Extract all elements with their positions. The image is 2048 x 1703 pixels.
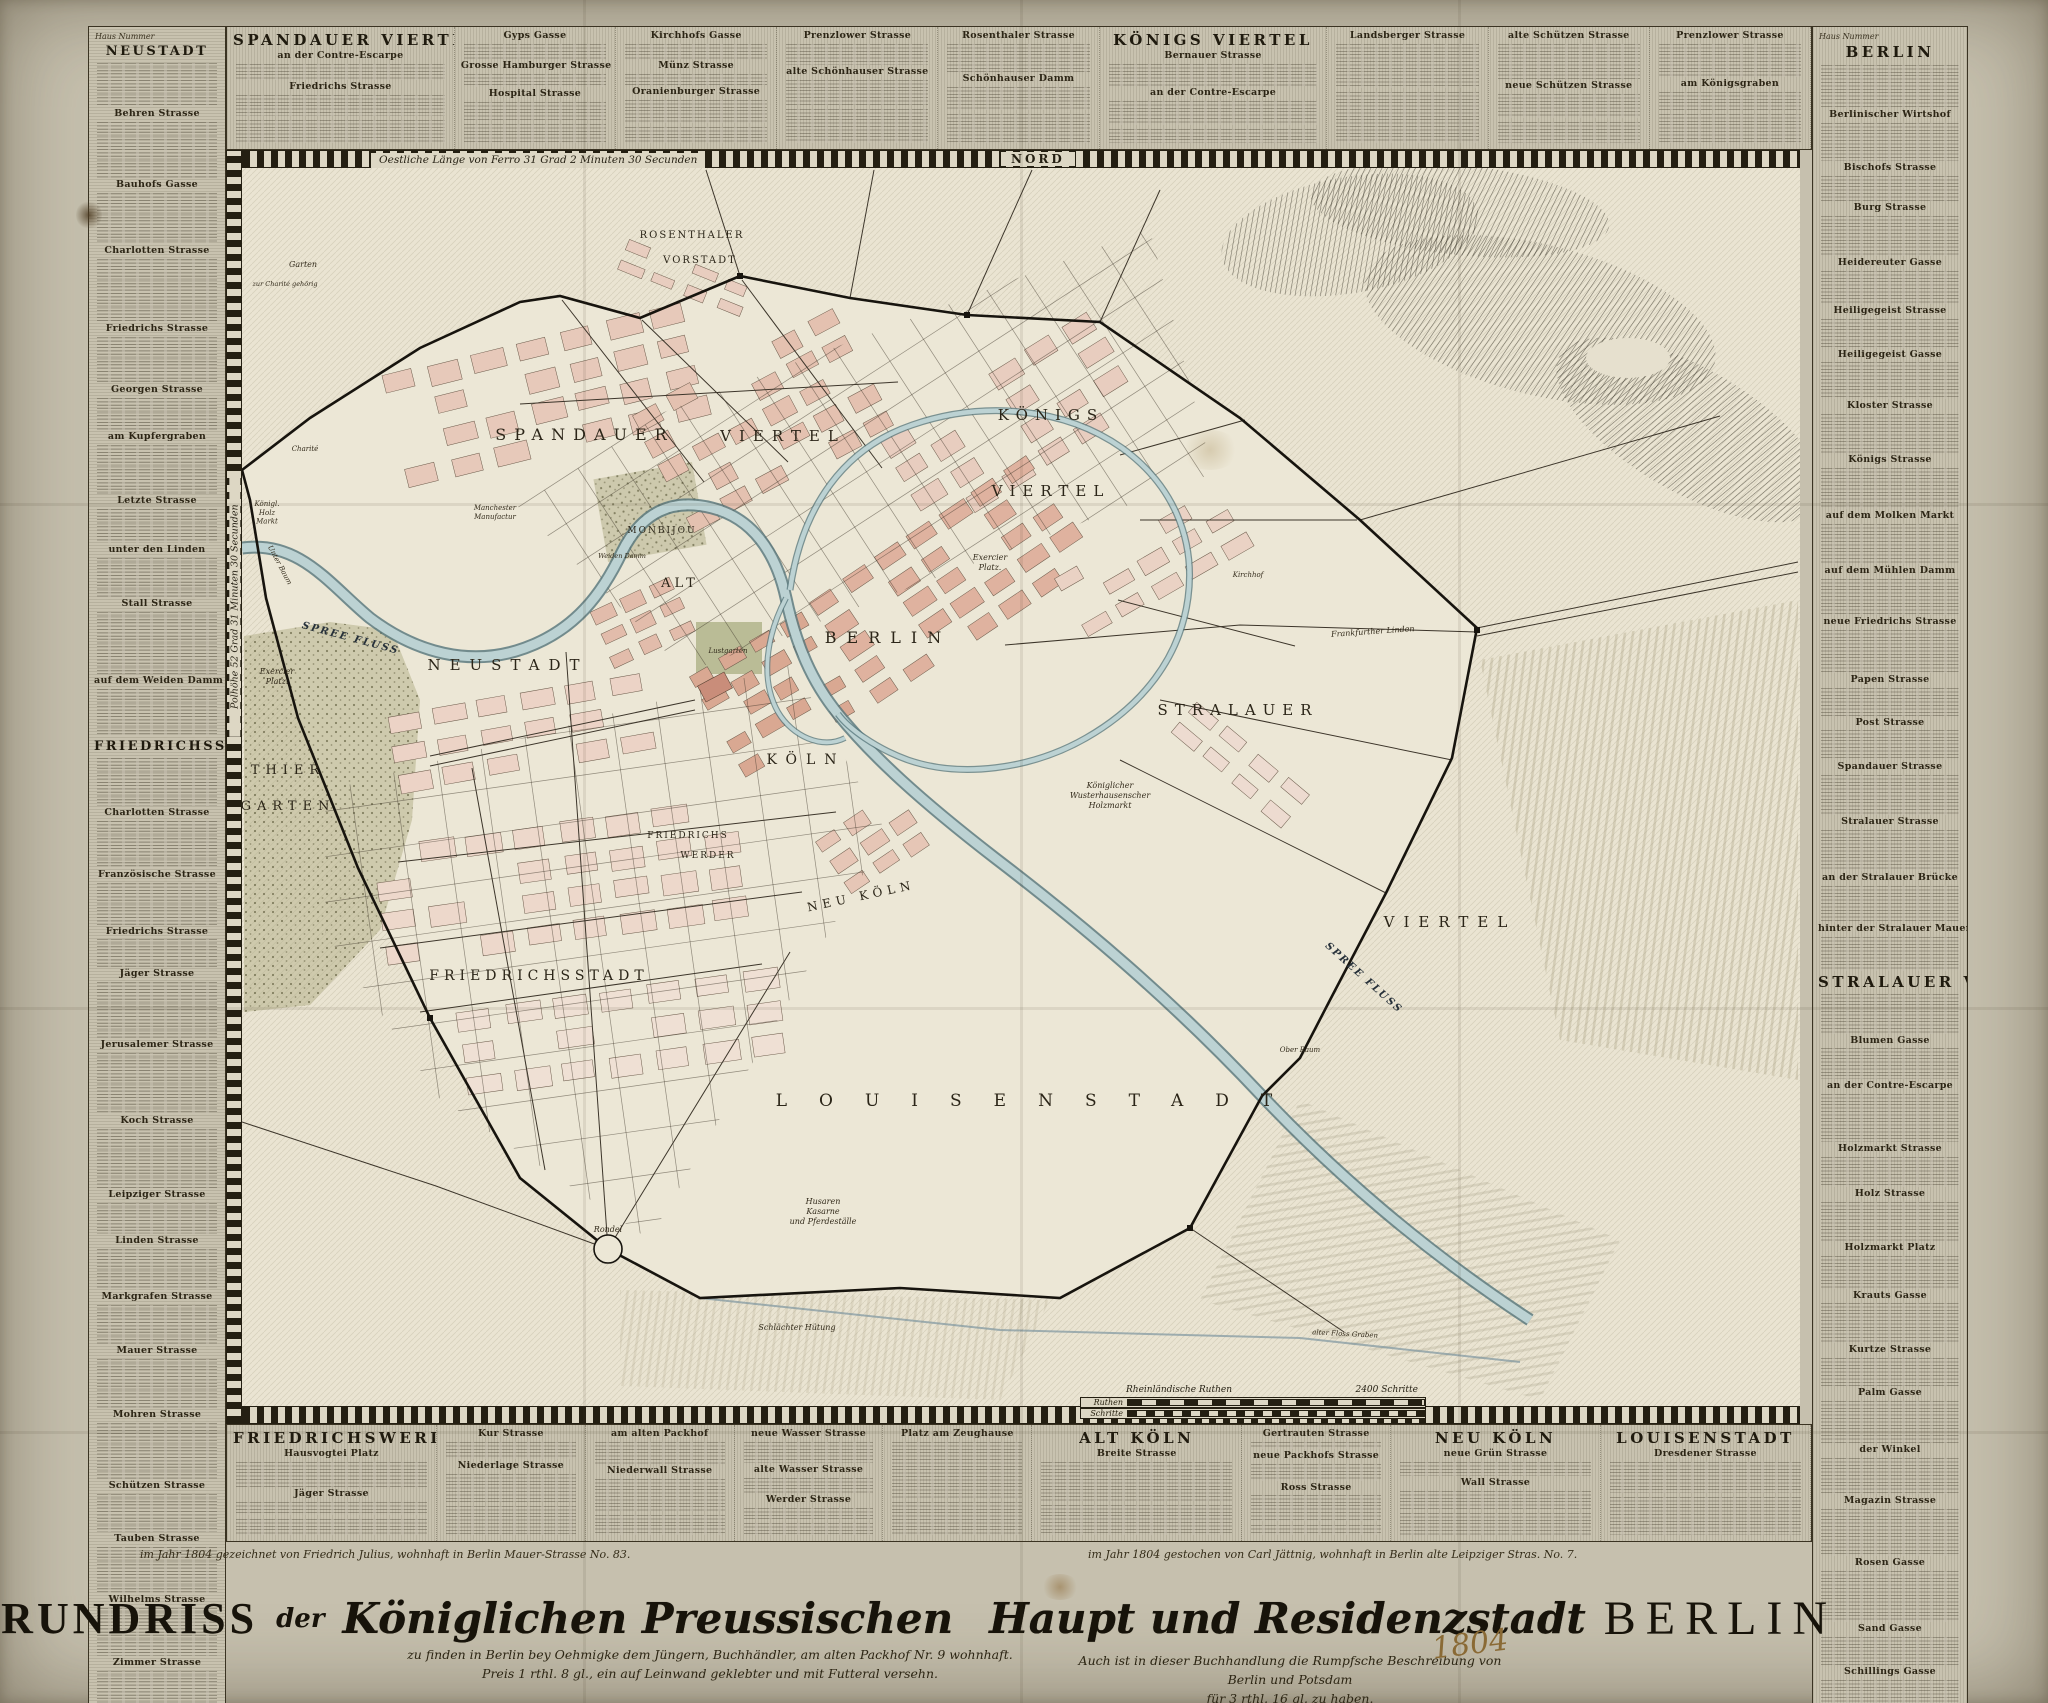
fields-south (620, 1290, 1050, 1400)
register-fineprint-filler (97, 1203, 217, 1235)
map-label: STRALAUER (1157, 701, 1318, 719)
register-street-name: Magazin Strasse (1818, 1496, 1962, 1507)
register-street-name: Markgrafen Strasse (94, 1292, 220, 1303)
map-label: Schlächter Hütung (758, 1323, 835, 1332)
latitude-note: Polhöhe 52 Grad 31 Minuten 30 Secunden (229, 477, 240, 737)
register-street-name: Heidereuter Gasse (1818, 258, 1962, 269)
map-label: VIERTEL (719, 427, 846, 445)
register-street-name: Ross Strasse (1248, 1483, 1384, 1494)
register-column: SPANDAUER VIERTELan der Contre-EscarpeFr… (227, 27, 455, 149)
scale-row-label: Schritte (1081, 1410, 1127, 1418)
register-column: Landsberger Strasse (1327, 27, 1488, 149)
rondel-plaza (594, 1235, 622, 1263)
register-note: Haus Nummer (1819, 33, 1962, 41)
register-fineprint-filler (595, 1442, 725, 1464)
register-street-name: Königs Strasse (1818, 455, 1962, 466)
register-street-name: Kurtze Strasse (1818, 1345, 1962, 1356)
register-street-name: an der Contre-Escarpe (1818, 1081, 1962, 1092)
register-street-name: Jerusalemer Strasse (94, 1040, 220, 1051)
register-fineprint-filler (446, 1506, 576, 1535)
register-street-name: Heiligegeist Gasse (1818, 350, 1962, 361)
map-label: THIER (251, 763, 325, 778)
register-street-name: Oranienburger Strasse (622, 87, 770, 98)
register-fineprint-filler (1821, 830, 1959, 871)
map-label: Lustgarten (707, 647, 748, 655)
register-street-name: Charlotten Strasse (94, 808, 220, 819)
register-fineprint-filler (892, 1502, 1022, 1535)
register-fineprint-filler (1821, 1048, 1959, 1079)
map-label: GARTEN (242, 799, 335, 814)
register-fineprint-filler (97, 509, 217, 543)
register-fineprint-filler (1109, 129, 1318, 143)
register-fineprint-filler (1821, 123, 1959, 161)
register-fineprint-filler (236, 1502, 427, 1515)
register-street-name: Hospital Strasse (461, 89, 609, 100)
register-fineprint-filler (947, 114, 1089, 143)
register-column: Prenzlower Strasseam Königsgraben (1650, 27, 1811, 149)
register-fineprint-filler (625, 44, 767, 59)
map-label: KÖLN (766, 750, 845, 768)
register-street-name: Dresdener Strasse (1607, 1449, 1804, 1460)
register-district-header: STRALAUER VIERTEL (1818, 975, 1962, 991)
register-district-header: NEUSTADT (94, 45, 220, 59)
register-fineprint-filler (97, 982, 217, 1038)
publisher-imprint: zu finden in Berlin bey Oehmigke dem Jün… (310, 1646, 1110, 1684)
register-fineprint-filler (1109, 64, 1318, 86)
register-street-name: Niederwall Strasse (592, 1466, 728, 1477)
map-label: BERLIN (825, 628, 951, 647)
register-fineprint-filler (97, 122, 217, 179)
register-fineprint-filler (1821, 1303, 1959, 1343)
register-street-name: Jäger Strasse (233, 1489, 430, 1500)
register-fineprint-filler (446, 1474, 576, 1502)
register-fineprint-filler (1821, 1401, 1959, 1443)
register-fineprint-filler (744, 1523, 874, 1535)
fold-crease (583, 0, 586, 1703)
map-label: Kirchhof (1232, 571, 1265, 579)
register-fineprint-filler (1821, 176, 1959, 201)
register-street-name: Berlinischer Wirtshof (1818, 110, 1962, 121)
register-street-name: Papen Strasse (1818, 675, 1962, 686)
register-fineprint-filler (97, 612, 217, 674)
register-fineprint-filler (236, 1462, 427, 1488)
title-grundriss: GRUNDRISS (0, 1597, 258, 1641)
register-district-header: BERLIN (1818, 45, 1962, 61)
map-label: Garten (289, 260, 317, 269)
register-fineprint-filler (1251, 1495, 1381, 1520)
register-column: Gertrauten Strasseneue Packhofs StrasseR… (1242, 1425, 1391, 1541)
register-street-name: Jäger Strasse (94, 969, 220, 980)
register-street-name: alte Wasser Strasse (741, 1465, 877, 1476)
register-fineprint-filler (1821, 1202, 1959, 1241)
register-street-name: Charlotten Strasse (94, 246, 220, 257)
register-fineprint-filler (1821, 1094, 1959, 1142)
register-street-name: Grosse Hamburger Strasse (461, 61, 609, 72)
register-fineprint-filler (1821, 216, 1959, 256)
register-fineprint-filler (97, 558, 217, 597)
register-fineprint-filler (97, 758, 217, 807)
register-street-name: Prenzlower Strasse (783, 31, 931, 42)
register-fineprint-filler (446, 1442, 576, 1459)
map-label: Charité (292, 445, 319, 453)
register-fineprint-filler (1109, 101, 1318, 126)
map-label: NEUSTADT (427, 656, 588, 674)
register-fineprint-filler (1821, 937, 1959, 971)
register-street-name: Rosenthaler Strasse (944, 31, 1092, 42)
register-fineprint-filler (97, 821, 217, 868)
register-fineprint-filler (97, 883, 217, 925)
register-street-name: auf dem Mühlen Damm (1818, 566, 1962, 577)
register-district-header: SPANDAUER VIERTEL (233, 33, 448, 49)
register-street-name: an der Stralauer Brücke (1818, 873, 1962, 884)
register-fineprint-filler (1821, 775, 1959, 815)
register-street-name: Georgen Strasse (94, 385, 220, 396)
register-column: NEU KÖLNneue Grün StrasseWall Strasse (1391, 1425, 1601, 1541)
register-street-name: Friedrichs Strasse (233, 82, 448, 93)
register-street-name: Werder Strasse (741, 1495, 877, 1506)
register-column: Gyps GasseGrosse Hamburger StrasseHospit… (455, 27, 616, 149)
register-fineprint-filler (1821, 994, 1959, 1033)
register-column: am alten PackhofNiederwall Strasse (586, 1425, 735, 1541)
register-street-name: alte Schönhauser Strasse (783, 67, 931, 78)
register-fineprint-filler (97, 398, 217, 431)
register-street-name: Gyps Gasse (461, 31, 609, 42)
map-label: Rondel (593, 1225, 623, 1234)
handwritten-year: 1804 (1430, 1625, 1509, 1664)
register-fineprint-filler (892, 1442, 1022, 1498)
map-label: VIERTEL (991, 482, 1111, 500)
register-fineprint-filler (947, 87, 1089, 110)
fold-crease (1020, 0, 1023, 1703)
register-street-name: am Kupfergraben (94, 432, 220, 443)
register-fineprint-filler (1821, 65, 1959, 108)
register-fineprint-filler (625, 100, 767, 123)
register-fineprint-filler (1821, 1256, 1959, 1289)
register-street-name: Niederlage Strasse (443, 1461, 579, 1472)
register-bottom-friedrichswerder-koeln-louisenstadt: FRIEDRICHSWERDERHausvogtei PlatzJäger St… (226, 1424, 1812, 1542)
register-column: FRIEDRICHSWERDERHausvogtei PlatzJäger St… (227, 1425, 437, 1541)
register-fineprint-filler (786, 44, 928, 65)
register-street-name: Prenzlower Strasse (1656, 31, 1804, 42)
register-fineprint-filler (97, 939, 217, 967)
register-street-name: Behren Strasse (94, 109, 220, 120)
register-street-name: Linden Strasse (94, 1236, 220, 1247)
scale-bar: Rheinländische Ruthen 2400 Schritte Ruth… (1080, 1386, 1426, 1419)
register-fineprint-filler (1821, 579, 1959, 614)
register-street-name: Krauts Gasse (1818, 1291, 1962, 1302)
register-street-name: der Winkel (1818, 1445, 1962, 1456)
register-fineprint-filler (1821, 414, 1959, 453)
register-fineprint-filler (744, 1442, 874, 1463)
map-sheet: Haus NummerNEUSTADTBehren StrasseBauhofs… (0, 0, 2048, 1703)
register-fineprint-filler (236, 64, 445, 80)
register-column: Prenzlower Strassealte Schönhauser Stras… (777, 27, 938, 149)
register-column: ALT KÖLNBreite Strasse (1032, 1425, 1242, 1541)
register-fineprint-filler (947, 44, 1089, 72)
register-fineprint-filler (97, 1053, 217, 1114)
title-connector: der (276, 1606, 324, 1632)
register-fineprint-filler (1400, 1513, 1591, 1535)
register-fineprint-filler (97, 689, 217, 736)
register-street-name: Mohren Strasse (94, 1410, 220, 1421)
register-street-name: Friedrichs Strasse (94, 324, 220, 335)
fold-crease (1458, 0, 1461, 1703)
register-fineprint-filler (97, 1129, 217, 1188)
register-fineprint-filler (1821, 630, 1959, 674)
register-column: neue Wasser Strassealte Wasser StrasseWe… (735, 1425, 884, 1541)
register-street-name: Bernauer Strasse (1106, 51, 1321, 62)
register-street-name: Stall Strasse (94, 599, 220, 610)
register-column: Platz am Zeughause (883, 1425, 1032, 1541)
register-note: Haus Nummer (95, 33, 220, 41)
map-label: ALT (660, 576, 699, 591)
register-fineprint-filler (1041, 1505, 1232, 1536)
register-fineprint-filler (1821, 271, 1959, 304)
register-fineprint-filler (97, 445, 217, 494)
register-fineprint-filler (97, 63, 217, 107)
register-fineprint-filler (1821, 1358, 1959, 1386)
register-street-name: Leipziger Strasse (94, 1190, 220, 1201)
register-fineprint-filler (1659, 44, 1801, 77)
register-fineprint-filler (1821, 730, 1959, 760)
register-fineprint-filler (625, 74, 767, 85)
register-fineprint-filler (1251, 1442, 1381, 1449)
register-street-name: Post Strasse (1818, 718, 1962, 729)
fold-crease (0, 1431, 2048, 1434)
register-fineprint-filler (744, 1478, 874, 1493)
register-fineprint-filler (1659, 92, 1801, 110)
register-street-name: Holz Strasse (1818, 1189, 1962, 1200)
register-fineprint-filler (1821, 362, 1959, 398)
register-fineprint-filler (1821, 1458, 1959, 1494)
register-street-name: Blumen Gasse (1818, 1036, 1962, 1047)
map-label: KÖNIGS (998, 406, 1104, 424)
register-fineprint-filler (1610, 1497, 1801, 1535)
register-fineprint-filler (1041, 1462, 1232, 1501)
longitude-note: Oestliche Länge von Ferro 31 Grad 2 Minu… (371, 153, 705, 168)
register-street-name: auf dem Molken Markt (1818, 511, 1962, 522)
register-column: LOUISENSTADTDresdener Strasse (1601, 1425, 1811, 1541)
register-fineprint-filler (625, 127, 767, 143)
register-street-name: Holzmarkt Strasse (1818, 1144, 1962, 1155)
register-top-spandauer-koenigs-viertel: SPANDAUER VIERTELan der Contre-EscarpeFr… (226, 26, 1812, 150)
register-fineprint-filler (97, 1494, 217, 1532)
register-fineprint-filler (786, 80, 928, 105)
map-label: Ober Baum (1280, 1046, 1321, 1054)
register-fineprint-filler (786, 109, 928, 143)
register-fineprint-filler (236, 1519, 427, 1535)
map-label: zur Charité gehörig (252, 280, 318, 288)
register-street-name: Spandauer Strasse (1818, 762, 1962, 773)
register-fineprint-filler (1251, 1525, 1381, 1535)
register-street-name: Kirchhofs Gasse (622, 31, 770, 42)
register-street-name: Französische Strasse (94, 870, 220, 881)
register-district-header: FRIEDRICHSSTADT (94, 740, 220, 754)
register-street-name: Mauer Strasse (94, 1346, 220, 1357)
register-fineprint-filler (1498, 94, 1640, 118)
register-fineprint-filler (1251, 1464, 1381, 1480)
register-street-name: unter den Linden (94, 545, 220, 556)
register-street-name: neue Friedrichs Strasse (1818, 617, 1962, 628)
title-berlin: BERLIN (1604, 1595, 1837, 1643)
register-street-name: am Königsgraben (1656, 79, 1804, 90)
register-district-header: KÖNIGS VIERTEL (1106, 33, 1321, 49)
fold-crease (0, 503, 2048, 506)
register-street-name: Koch Strasse (94, 1116, 220, 1127)
ink-stain (76, 200, 102, 230)
register-street-name: Schützen Strasse (94, 1481, 220, 1492)
register-fineprint-filler (1821, 886, 1959, 922)
register-street-name: auf dem Weiden Damm (94, 676, 220, 687)
register-street-name: Holzmarkt Platz (1818, 1243, 1962, 1254)
register-street-name: Kloster Strasse (1818, 401, 1962, 412)
register-column: Kirchhofs GasseMünz StrasseOranienburger… (616, 27, 777, 149)
register-fineprint-filler (236, 120, 445, 143)
register-fineprint-filler (595, 1515, 725, 1535)
scale-bar-ruthen (1127, 1399, 1425, 1406)
register-street-name: neue Packhofs Strasse (1248, 1451, 1384, 1462)
ink-stain (1040, 1574, 1080, 1600)
register-fineprint-filler (744, 1508, 874, 1520)
map-label: Weiden Damm (598, 552, 646, 560)
register-column: Kur StrasseNiederlage Strasse (437, 1425, 586, 1541)
scale-bar-schritte (1127, 1410, 1425, 1417)
map-label: FRIEDRICHS (647, 831, 729, 841)
map-label: LOUISENSTADT (776, 1091, 1305, 1111)
register-fineprint-filler (236, 95, 445, 116)
nord-compass-label: NORD (1001, 152, 1075, 166)
scale-caption-schritte: 2400 Schritte (1355, 1386, 1418, 1395)
register-left-neustadt-friedrichsstadt: Haus NummerNEUSTADTBehren StrasseBauhofs… (88, 26, 226, 1703)
register-street-name: Heiligegeist Strasse (1818, 306, 1962, 317)
register-street-name: Bauhofs Gasse (94, 180, 220, 191)
ink-stain (1180, 430, 1240, 470)
register-column: KÖNIGS VIERTELBernauer Strassean der Con… (1100, 27, 1328, 149)
register-fineprint-filler (595, 1479, 725, 1511)
register-fineprint-filler (97, 1359, 217, 1408)
map-label: MONBIJOU (627, 526, 696, 536)
register-fineprint-filler (1498, 122, 1640, 143)
register-street-name: an der Contre-Escarpe (1106, 88, 1321, 99)
register-fineprint-filler (1659, 114, 1801, 143)
register-street-name: Tauben Strasse (94, 1534, 220, 1545)
register-street-name: Münz Strasse (622, 61, 770, 72)
register-fineprint-filler (1400, 1462, 1591, 1476)
map-label: FRIEDRICHSSTADT (429, 968, 648, 984)
register-street-name: Bischofs Strasse (1818, 163, 1962, 174)
register-fineprint-filler (1821, 1157, 1959, 1188)
title-script-left: Königlichen Preussischen (343, 1598, 954, 1640)
register-street-name: an der Contre-Escarpe (233, 51, 448, 62)
map-label: VORSTADT (662, 255, 737, 266)
register-street-name: Schönhauser Damm (944, 74, 1092, 85)
register-fineprint-filler (97, 193, 217, 244)
map-frame-ruler-left: Polhöhe 52 Grad 31 Minuten 30 Secunden (226, 150, 242, 1424)
register-fineprint-filler (1400, 1491, 1591, 1509)
map-label: ManchesterManufactur (473, 504, 517, 521)
title-block: GRUNDRISS der Königlichen Preussischen H… (0, 1560, 2048, 1703)
register-right-berlin-stralauer-viertel: Haus NummerBERLINBerlinischer WirtshofBi… (1812, 26, 1968, 1703)
register-fineprint-filler (97, 1305, 217, 1344)
fold-crease (0, 1007, 2048, 1010)
register-fineprint-filler (1821, 1509, 1959, 1556)
scale-caption-ruthen: Rheinländische Ruthen (1126, 1386, 1232, 1395)
register-street-name: alte Schützen Strasse (1495, 31, 1643, 42)
register-fineprint-filler (1498, 44, 1640, 79)
register-street-name: Stralauer Strasse (1818, 817, 1962, 828)
register-street-name: hinter der Stralauer Mauer (1818, 924, 1962, 935)
map-label: ROSENTHALER (640, 230, 745, 241)
register-fineprint-filler (97, 1249, 217, 1290)
scale-row-label: Ruthen (1081, 1399, 1127, 1407)
register-fineprint-filler (1610, 1462, 1801, 1493)
register-fineprint-filler (1821, 688, 1959, 716)
map-label: WERDER (680, 851, 735, 861)
register-fineprint-filler (97, 259, 217, 322)
register-street-name: neue Schützen Strasse (1495, 81, 1643, 92)
register-fineprint-filler (1821, 524, 1959, 564)
register-street-name: Hausvogtei Platz (233, 1449, 430, 1460)
register-fineprint-filler (1821, 319, 1959, 348)
register-street-name: neue Grün Strasse (1397, 1449, 1594, 1460)
register-street-name: Palm Gasse (1818, 1388, 1962, 1399)
register-column: alte Schützen Strasseneue Schützen Stras… (1489, 27, 1650, 149)
register-street-name: Burg Strasse (1818, 203, 1962, 214)
register-street-name: Friedrichs Strasse (94, 927, 220, 938)
map-label: VIERTEL (1383, 913, 1517, 931)
register-street-name: Wall Strasse (1397, 1478, 1594, 1489)
register-street-name: Breite Strasse (1038, 1449, 1235, 1460)
register-fineprint-filler (97, 337, 217, 383)
